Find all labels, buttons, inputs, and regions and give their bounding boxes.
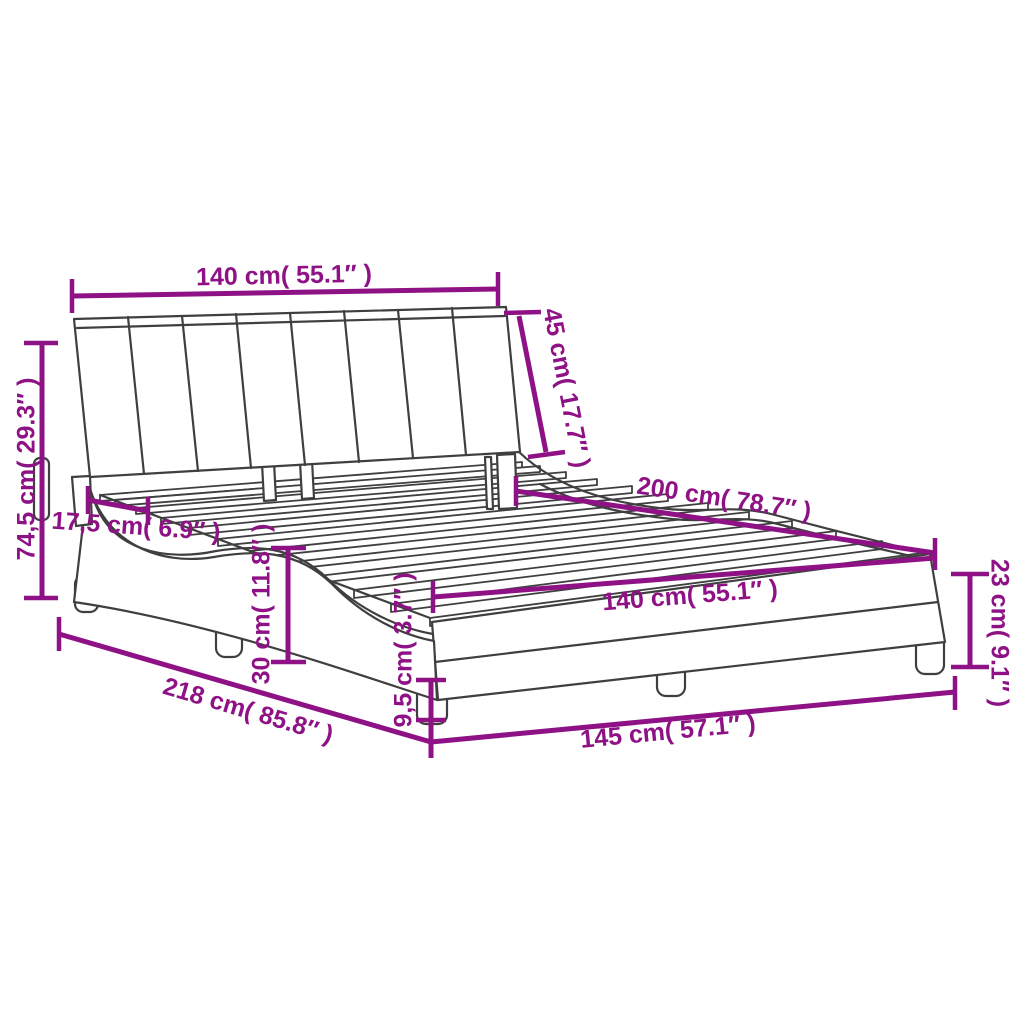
label-headboard-width: 140 cm( 55.1″ ) bbox=[196, 260, 373, 293]
bed-dimension-diagram: 140 cm( 55.1″ ) 45 cm( 17.7″ ) 74,5 cm( … bbox=[0, 0, 1024, 1024]
dim-foot-height bbox=[951, 574, 989, 667]
label-side-rail-height: 30 cm( 11.8″ ) bbox=[248, 524, 277, 685]
headboard bbox=[74, 307, 520, 477]
label-total-height: 74,5 cm( 29.3″ ) bbox=[13, 378, 42, 561]
post-mid-2 bbox=[300, 460, 314, 499]
label-foot-height: 23 cm( 9.1″ ) bbox=[985, 559, 1014, 707]
label-leg-height: 9,5 cm( 3.7″ ) bbox=[390, 572, 419, 727]
post-right-thin bbox=[485, 457, 493, 509]
diagram-line-art bbox=[0, 0, 1024, 1024]
